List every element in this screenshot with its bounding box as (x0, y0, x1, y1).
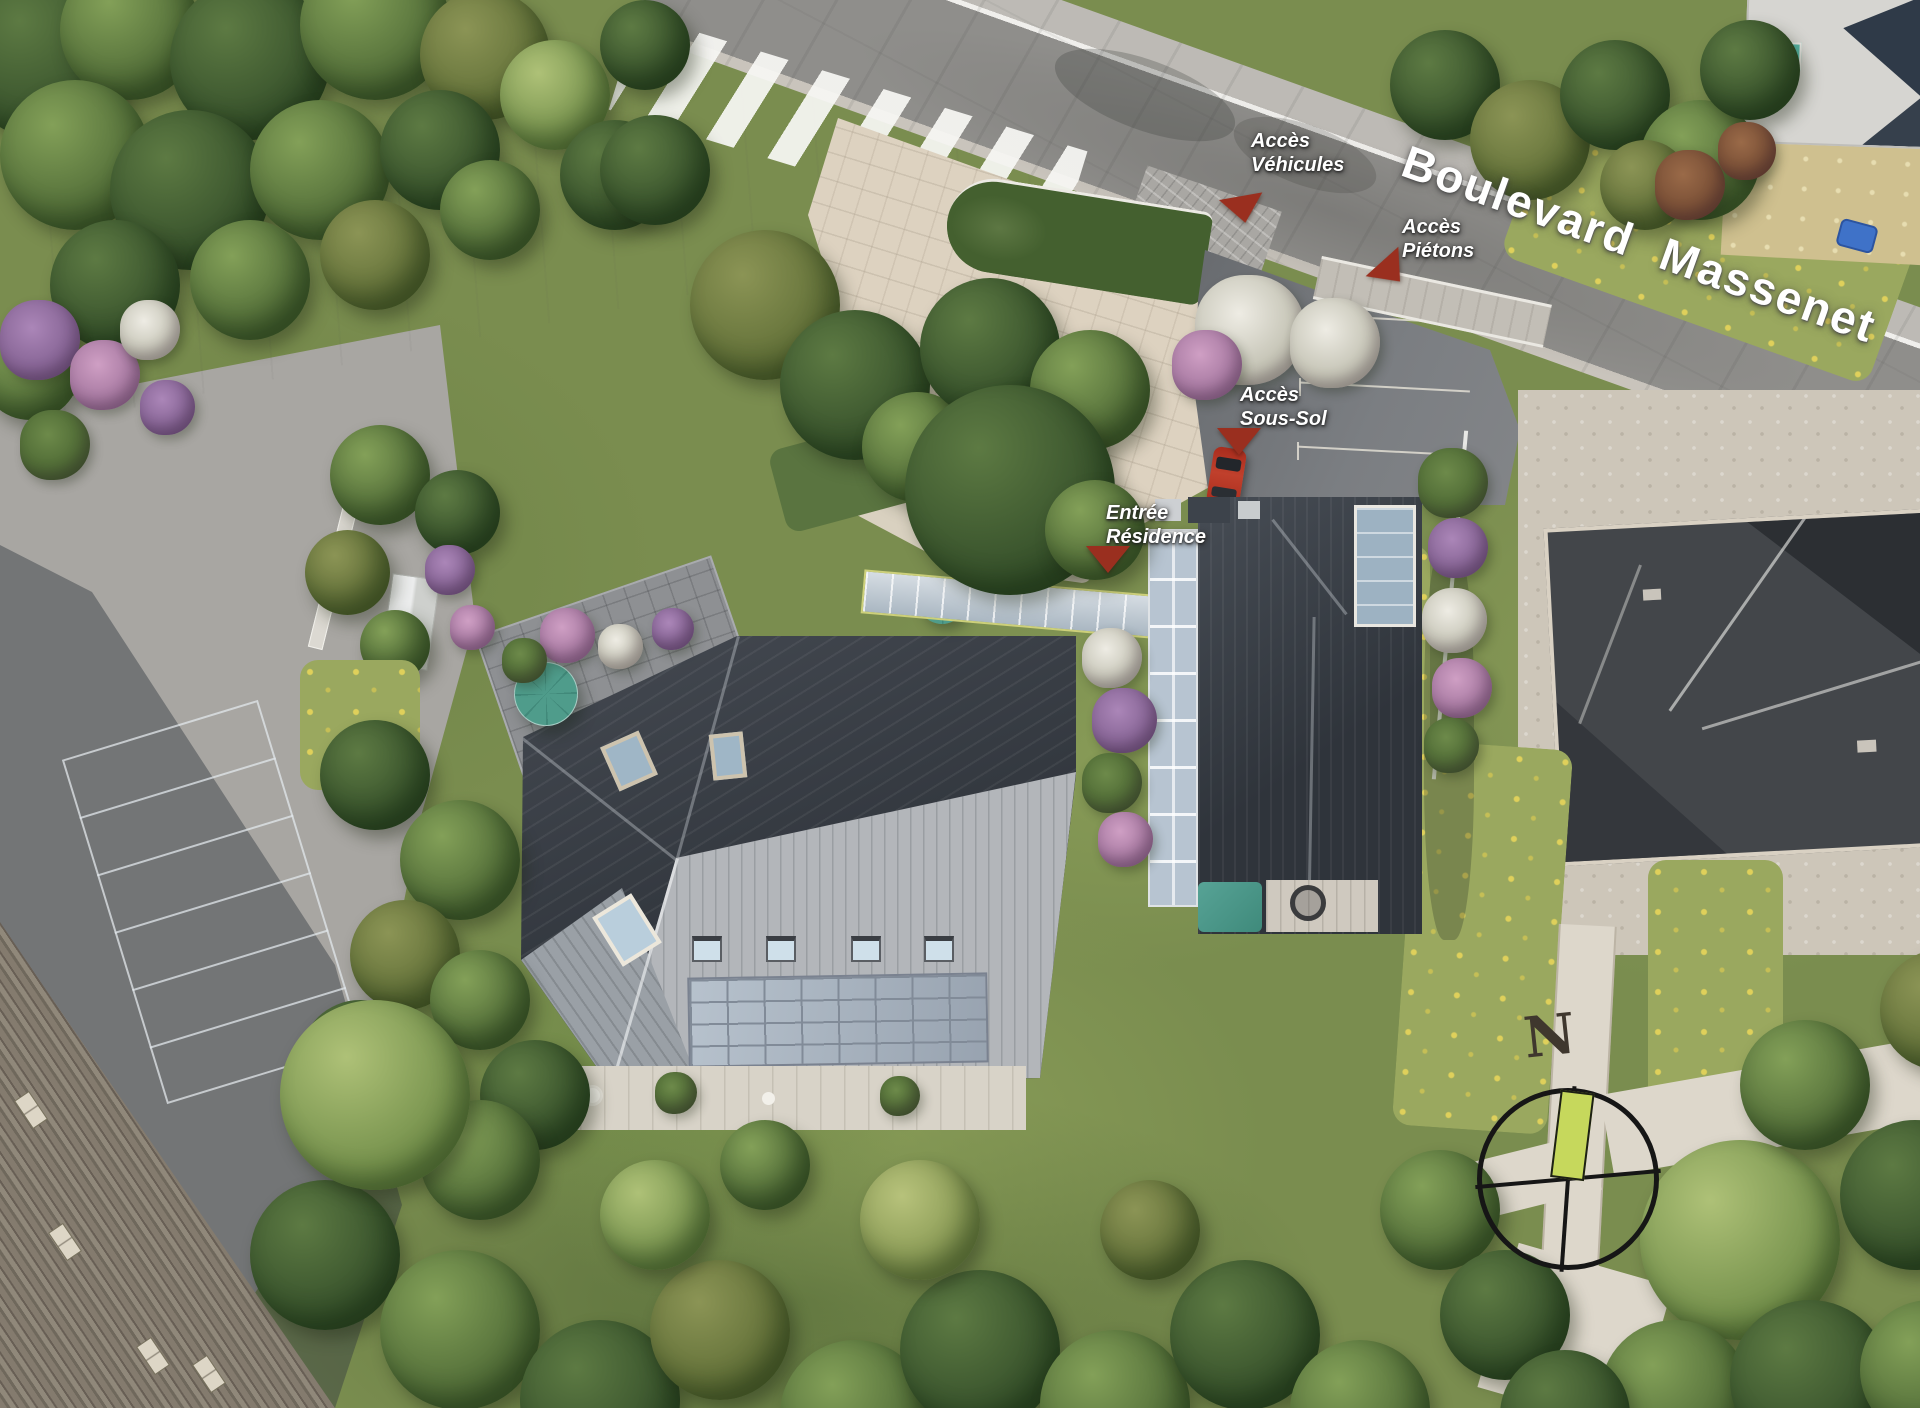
neighbor-building-east (1543, 508, 1920, 866)
rooftop-unit (1238, 501, 1260, 519)
tree (250, 1180, 400, 1330)
marker-line: Entrée (1106, 502, 1168, 526)
roof-window (600, 731, 658, 792)
tree (190, 220, 310, 340)
awning (1198, 882, 1262, 932)
dormer-window (766, 936, 796, 962)
dormer-window (692, 936, 722, 962)
rooftop-unit (1188, 497, 1230, 523)
house-roof-glazing (1841, 0, 1920, 109)
tree (280, 1000, 470, 1190)
roof-ridge-line (1578, 564, 1642, 724)
chimney (1643, 589, 1662, 601)
roof-window (709, 731, 748, 780)
terrace-south (556, 1066, 1026, 1130)
marker-line: Accès (1240, 384, 1299, 408)
tree (320, 200, 430, 310)
shrub (1082, 753, 1142, 813)
parking-line-tick (1299, 378, 1301, 396)
shrub (1418, 448, 1488, 518)
compass-rose (1477, 1088, 1659, 1270)
marker-line: Véhicules (1251, 154, 1344, 178)
tree (1100, 1180, 1200, 1280)
dormer-window (851, 936, 881, 962)
shrub (1082, 628, 1142, 688)
tree (600, 1160, 710, 1270)
roof-vent (14, 1091, 48, 1129)
tree (1840, 1120, 1920, 1270)
roof-ridge-line (1702, 648, 1920, 730)
tree (900, 1270, 1060, 1408)
car-windshield (1215, 456, 1242, 472)
dormer-window (924, 936, 954, 962)
roof-ridge-line (1669, 513, 1809, 711)
tree (380, 1250, 540, 1408)
shrub (1428, 518, 1488, 578)
tree (720, 1120, 810, 1210)
shrub (1432, 658, 1492, 718)
tree (860, 1160, 980, 1280)
hanging-chair (1290, 885, 1326, 921)
tree (1860, 1300, 1920, 1408)
compass-north-label: N (1521, 1005, 1578, 1066)
marker-line: Accès (1251, 130, 1310, 154)
roof-ridge (521, 737, 677, 861)
tree (305, 530, 390, 615)
roof-plane (1557, 693, 1736, 866)
roof-plane (1747, 512, 1920, 692)
marker-entree-residence-arrow-icon (1086, 546, 1130, 573)
house-roof-glazing (1862, 83, 1920, 147)
marker-line: Piétons (1402, 240, 1474, 264)
shrub (1098, 812, 1153, 867)
tree (600, 115, 710, 225)
chimney (1857, 740, 1877, 753)
marker-line: Accès (1402, 216, 1461, 240)
tree (320, 720, 430, 830)
roof-vent (136, 1337, 170, 1375)
tree (1700, 20, 1800, 120)
roof-vent (48, 1223, 82, 1261)
solar-array (687, 972, 989, 1067)
parking-line-tick (1297, 442, 1299, 460)
site-plan-scene: N Boulevard Massenet Accès Véhicules Acc… (0, 0, 1920, 1408)
tree (1040, 1330, 1190, 1408)
tree (1740, 1020, 1870, 1150)
tree (440, 160, 540, 260)
courtyard-glazing (1354, 505, 1416, 627)
tree (650, 1260, 790, 1400)
building-b (1148, 497, 1422, 934)
marker-acces-sous-sol-arrow-icon (1217, 428, 1261, 455)
shrub (1422, 588, 1487, 653)
roof-vent (192, 1355, 226, 1393)
tree (600, 0, 690, 90)
patio-table (762, 1092, 775, 1105)
tree (415, 470, 500, 555)
